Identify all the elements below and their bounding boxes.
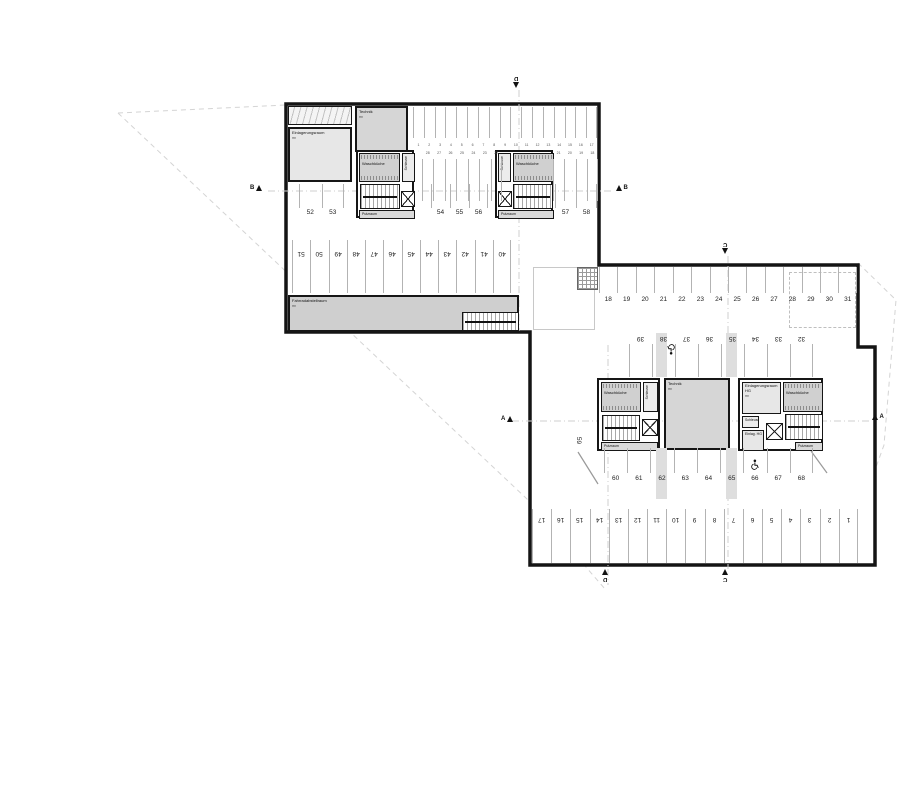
parking-stall: 53 xyxy=(322,184,345,216)
section-arrow-icon xyxy=(722,248,728,254)
parking-stall: 33 xyxy=(767,332,790,377)
parking-stall: 2 xyxy=(820,509,839,563)
stall-number: 2 xyxy=(820,516,839,523)
stairs-icon xyxy=(513,184,553,209)
stall-number: 35 xyxy=(721,335,744,342)
stall-number: 57 xyxy=(555,209,576,216)
parking-stall: 43 xyxy=(438,240,456,293)
stall-number: 37 xyxy=(675,335,698,342)
stall-number: 50 xyxy=(310,250,328,257)
entry-ramp xyxy=(288,106,352,125)
stall-number: 67 xyxy=(767,475,790,482)
shelf-hatch xyxy=(603,406,639,410)
room-label: Technik xyxy=(359,109,373,114)
stall-number: 66 xyxy=(743,475,766,482)
stall-number: 7 xyxy=(478,143,489,147)
section-letter: B xyxy=(624,185,628,191)
room-schleuse: Schleuse xyxy=(742,416,759,428)
room-label: Waschküche xyxy=(786,391,809,396)
parking-stall: 64 xyxy=(697,448,720,488)
parking-stall: 11 xyxy=(647,509,666,563)
stall-number: 11 xyxy=(521,143,532,147)
stall-number: 26 xyxy=(445,151,456,155)
stall-number: 45 xyxy=(402,250,420,257)
parking-stall: 32 xyxy=(790,332,813,377)
room-einlagerungsraum: Einlagerungsraum m² xyxy=(288,127,352,182)
stall-number: 24 xyxy=(468,151,479,155)
parking-stall: 4 xyxy=(445,107,456,148)
section-arrow-icon xyxy=(256,185,262,191)
parking-stall: 6 xyxy=(467,107,478,148)
parking-stall: 45 xyxy=(402,240,420,293)
stall-number: 19 xyxy=(576,151,587,155)
room-label: Putzraum xyxy=(501,212,516,216)
parking-stall: 10 xyxy=(666,509,685,563)
parking-stall: 62 xyxy=(650,448,673,488)
section-marker-d-top: D xyxy=(513,75,519,88)
section-arrow-icon xyxy=(722,569,728,575)
parking-stall: 1 xyxy=(413,107,424,148)
parking-stall: 17 xyxy=(586,107,597,148)
parking-stall: 15 xyxy=(570,509,589,563)
section-marker-a-right: A xyxy=(872,414,884,420)
parking-stall: 50 xyxy=(310,240,328,293)
room-label: Einlagerungsraum xyxy=(292,130,324,135)
stall-number: 9 xyxy=(685,516,704,523)
stall-number: 47 xyxy=(365,250,383,257)
shelf-hatch xyxy=(785,384,821,388)
stair-core-3: Waschküche Schleuse Putzraum xyxy=(597,378,660,451)
stall-number: 30 xyxy=(820,296,838,303)
wheelchair-icon xyxy=(750,459,759,470)
parking-stall: 65 xyxy=(720,448,743,488)
room-schleuse: Schleuse xyxy=(643,382,658,412)
stall-number: 20 xyxy=(636,296,654,303)
shelf-hatch xyxy=(515,155,552,159)
stall-number: 34 xyxy=(744,335,767,342)
parking-stall: 22 xyxy=(673,267,691,311)
parking-stall: 3 xyxy=(435,107,446,148)
room-label: Technik xyxy=(668,381,682,386)
section-arrow-icon xyxy=(872,414,878,420)
stall-number: 20 xyxy=(564,151,575,155)
room-label: Schleuse xyxy=(745,418,759,422)
stall-number: 12 xyxy=(628,516,647,523)
parking-stall: 15 xyxy=(565,107,576,148)
stall-number: 22 xyxy=(491,151,502,155)
room-area: m² xyxy=(292,136,296,140)
stall-row-57-58: 5758 xyxy=(555,184,597,216)
room-label: Putzraum xyxy=(362,212,377,216)
parking-stall: 37 xyxy=(675,332,698,377)
section-marker-b-right: B xyxy=(616,185,628,191)
stall-number: 31 xyxy=(838,296,856,303)
stall-number: 68 xyxy=(790,475,813,482)
parking-stall: 49 xyxy=(329,240,347,293)
stall-number: 3 xyxy=(800,516,819,523)
room-putzraum: Putzraum xyxy=(359,210,415,219)
parking-stall: 44 xyxy=(420,240,438,293)
stall-number: 33 xyxy=(767,335,790,342)
stall-number: 14 xyxy=(590,516,609,523)
parking-stall: 41 xyxy=(475,240,493,293)
parking-stall: 67 xyxy=(767,448,790,488)
parking-stall: 12 xyxy=(532,107,543,148)
parking-stall: 16 xyxy=(551,509,570,563)
section-marker-b-left: B xyxy=(250,185,262,191)
parking-stall: 58 xyxy=(576,184,597,216)
room-label: Schleuse xyxy=(645,385,649,399)
parking-stall: 55 xyxy=(450,184,469,216)
parking-stall: 9 xyxy=(500,107,511,148)
section-letter: A xyxy=(501,416,505,422)
stall-number: 1 xyxy=(413,143,424,147)
stall-number: 17 xyxy=(532,516,551,523)
room-label: Fahrradabstellraum xyxy=(292,298,327,303)
section-letter: C xyxy=(723,576,727,582)
stall-number: 40 xyxy=(493,250,511,257)
parking-stall: 47 xyxy=(365,240,383,293)
stair-core-2: Waschküche Schleuse Putzraum xyxy=(495,150,553,218)
stall-number: 18 xyxy=(587,151,598,155)
parking-stall: 35 xyxy=(721,332,744,377)
room-schleuse: Schleuse xyxy=(402,153,415,182)
stall-number: 21 xyxy=(553,151,564,155)
room-putzraum: Putzraum xyxy=(498,210,554,219)
parking-stall: 9 xyxy=(685,509,704,563)
stall-row-52-53: 5253 xyxy=(299,184,344,216)
stall-number: 15 xyxy=(570,516,589,523)
section-arrow-icon xyxy=(513,82,519,88)
stall-number: 44 xyxy=(420,250,438,257)
stall-number: 62 xyxy=(650,475,673,482)
shelf-hatch xyxy=(785,406,821,410)
shelf-hatch xyxy=(361,155,398,159)
stall-number: 5 xyxy=(762,516,781,523)
room-waschkueche: Waschküche xyxy=(601,382,641,412)
stall-number: 27 xyxy=(433,151,444,155)
parking-stall: 14 xyxy=(554,107,565,148)
stall-number: 55 xyxy=(450,209,469,216)
section-arrow-icon xyxy=(602,569,608,575)
parking-stall: 31 xyxy=(838,267,856,311)
stall-number: 51 xyxy=(292,250,310,257)
parking-stall: 13 xyxy=(543,107,554,148)
stall-number: 15 xyxy=(565,143,576,147)
room-label: Einlag. HG xyxy=(745,432,762,436)
stall-row-60-68: 606162636465666768 xyxy=(604,448,813,488)
stairs-icon xyxy=(360,184,400,209)
stair-core-4: Einlagerungsraum HG m² Waschküche Schleu… xyxy=(738,378,823,451)
stall-number: 54 xyxy=(431,209,450,216)
stall-row-upper-top: 1234567891011121314151617 xyxy=(413,107,597,148)
stall-number: 4 xyxy=(781,516,800,523)
stall-number: 14 xyxy=(554,143,565,147)
stall-number: 3 xyxy=(435,143,446,147)
stall-number: 10 xyxy=(666,516,685,523)
elevator-icon xyxy=(642,419,658,436)
stall-number: 6 xyxy=(743,516,762,523)
section-letter: D xyxy=(603,576,607,582)
stall-number: 21 xyxy=(654,296,672,303)
elevator-icon xyxy=(766,423,783,440)
stall-number: 16 xyxy=(551,516,570,523)
floor-plan: Einlagerungsraum m² Technik m² Waschküch… xyxy=(0,0,900,793)
stall-number: 17 xyxy=(586,143,597,147)
stall-number: 64 xyxy=(697,475,720,482)
room-technik-lower: Technik m² xyxy=(664,378,730,450)
stall-number: 8 xyxy=(705,516,724,523)
stall-number: 2 xyxy=(424,143,435,147)
parking-stall: 42 xyxy=(456,240,474,293)
wheelchair-icon xyxy=(667,344,676,355)
parking-stall: 2 xyxy=(424,107,435,148)
parking-stall: 22 xyxy=(491,151,502,201)
room-label: Waschküche xyxy=(604,391,627,396)
parking-stall: 24 xyxy=(710,267,728,311)
stall-number-59: 59 xyxy=(575,437,582,444)
parking-stall: 56 xyxy=(469,184,488,216)
stall-number: 28 xyxy=(783,296,801,303)
stall-number: 24 xyxy=(710,296,728,303)
parking-stall: 54 xyxy=(431,184,450,216)
stall-row-32-39: 3938373635343332 xyxy=(629,332,813,377)
room-label: Schleuse xyxy=(404,156,408,170)
stall-number: 11 xyxy=(647,516,666,523)
stall-number: 39 xyxy=(629,335,652,342)
stall-number: 5 xyxy=(456,143,467,147)
parking-stall: 3 xyxy=(800,509,819,563)
parking-stall: 7 xyxy=(478,107,489,148)
stall-number: 6 xyxy=(467,143,478,147)
stall-number: 58 xyxy=(576,209,597,216)
stall-number: 18 xyxy=(599,296,617,303)
parking-stall: 68 xyxy=(790,448,813,488)
parking-stall: 25 xyxy=(728,267,746,311)
stall-number: 10 xyxy=(510,143,521,147)
section-letter: D xyxy=(514,75,518,81)
room-area: m² xyxy=(292,304,296,308)
stall-number: 36 xyxy=(698,335,721,342)
stall-number: 41 xyxy=(475,250,493,257)
stall-number: 12 xyxy=(532,143,543,147)
stall-number: 42 xyxy=(456,250,474,257)
room-technik-upper: Technik m² xyxy=(355,106,408,152)
stall-number: 56 xyxy=(469,209,488,216)
parking-stall: 48 xyxy=(347,240,365,293)
stall-number: 1 xyxy=(839,516,858,523)
parking-stall: 1 xyxy=(839,509,858,563)
stall-number: 7 xyxy=(724,516,743,523)
stall-number: 26 xyxy=(746,296,764,303)
stall-number: 4 xyxy=(445,143,456,147)
stall-number: 23 xyxy=(691,296,709,303)
room-waschkueche: Waschküche xyxy=(359,153,400,182)
section-arrow-icon xyxy=(616,185,622,191)
stall-number: 38 xyxy=(652,335,675,342)
stall-number: 65 xyxy=(720,475,743,482)
stall-number: 61 xyxy=(627,475,650,482)
stall-number: 43 xyxy=(438,250,456,257)
parking-stall: 23 xyxy=(691,267,709,311)
parking-stall: 57 xyxy=(555,184,576,216)
stall-number: 28 xyxy=(422,151,433,155)
room-einlagerungsraum-hg: Einlagerungsraum HG m² xyxy=(742,382,781,414)
parking-stall: 60 xyxy=(604,448,627,488)
parking-stall: 7 xyxy=(724,509,743,563)
grating-icon xyxy=(577,267,598,290)
ramp-stairs-icon xyxy=(462,312,519,331)
stall-number: 49 xyxy=(329,250,347,257)
stall-number: 19 xyxy=(617,296,635,303)
section-marker-a-left: A xyxy=(501,416,513,422)
parking-stall: 61 xyxy=(627,448,650,488)
parking-stall: 20 xyxy=(636,267,654,311)
shelf-hatch xyxy=(515,176,552,180)
parking-stall: 63 xyxy=(674,448,697,488)
parking-stall: 18 xyxy=(599,267,617,311)
section-marker-d-bottom: D xyxy=(602,569,608,582)
shelf-hatch xyxy=(603,384,639,388)
parking-stall: 8 xyxy=(705,509,724,563)
room-label: Waschküche xyxy=(362,162,385,167)
room-area: m² xyxy=(745,394,749,398)
parking-stall: 6 xyxy=(743,509,762,563)
stall-number: 63 xyxy=(674,475,697,482)
room-label: Einlagerungsraum HG xyxy=(745,384,780,394)
parking-stall: 36 xyxy=(698,332,721,377)
section-letter: A xyxy=(880,414,884,420)
room-area: m² xyxy=(668,387,672,391)
stall-number: 48 xyxy=(347,250,365,257)
parking-stall: 16 xyxy=(575,107,586,148)
parking-stall: 14 xyxy=(590,509,609,563)
parking-stall: 10 xyxy=(510,107,521,148)
stall-number: 46 xyxy=(383,250,401,257)
parking-stall: 13 xyxy=(609,509,628,563)
parking-stall: 5 xyxy=(456,107,467,148)
shelf-hatch xyxy=(361,176,398,180)
room-waschkueche: Waschküche xyxy=(783,382,823,412)
section-marker-c-bottom: C xyxy=(722,569,728,582)
stall-number: 25 xyxy=(456,151,467,155)
stairs-icon xyxy=(602,415,640,441)
section-letter: B xyxy=(250,185,254,191)
stall-number: 25 xyxy=(728,296,746,303)
stall-number: 9 xyxy=(500,143,511,147)
parking-stall: 51 xyxy=(292,240,310,293)
parking-stall: 11 xyxy=(521,107,532,148)
stall-number: 29 xyxy=(802,296,820,303)
stall-number: 13 xyxy=(609,516,628,523)
stall-number: 32 xyxy=(790,335,813,342)
stall-number: 16 xyxy=(575,143,586,147)
parking-stall: 52 xyxy=(299,184,322,216)
stall-number: 27 xyxy=(765,296,783,303)
section-arrow-icon xyxy=(507,416,513,422)
parking-stall: 46 xyxy=(383,240,401,293)
elevator-icon xyxy=(401,191,415,207)
parking-stall: 29 xyxy=(802,267,820,311)
parking-stall: 5 xyxy=(762,509,781,563)
section-marker-c-top: C xyxy=(722,241,728,254)
parking-stall: 40 xyxy=(493,240,511,293)
stall-row-54-56: 545556 xyxy=(431,184,488,216)
stall-number: 8 xyxy=(489,143,500,147)
stall-number: 13 xyxy=(543,143,554,147)
parking-stall: 21 xyxy=(654,267,672,311)
stall-row-bottom-1-17: 1716151413121110987654321 xyxy=(532,509,858,563)
parking-stall: 27 xyxy=(765,267,783,311)
room-label: Waschküche xyxy=(516,162,539,167)
stall-number: 60 xyxy=(604,475,627,482)
stall-number: 53 xyxy=(322,209,345,216)
parking-stall: 30 xyxy=(820,267,838,311)
parking-stall: 34 xyxy=(744,332,767,377)
stairs-icon xyxy=(785,414,823,440)
stall-row-40-51: 515049484746454443424140 xyxy=(292,240,511,293)
parking-stall: 26 xyxy=(746,267,764,311)
parking-stall: 28 xyxy=(783,267,801,311)
parking-stall: 4 xyxy=(781,509,800,563)
stair-core-1: Waschküche Schleuse Putzraum xyxy=(356,150,414,218)
parking-stall: 19 xyxy=(617,267,635,311)
stall-number: 23 xyxy=(479,151,490,155)
room-area: m² xyxy=(359,115,363,119)
parking-stall: 39 xyxy=(629,332,652,377)
parking-stall: 12 xyxy=(628,509,647,563)
room-waschkueche: Waschküche xyxy=(513,153,554,182)
parking-stall: 8 xyxy=(489,107,500,148)
section-letter: C xyxy=(723,241,727,247)
parking-stall: 17 xyxy=(532,509,551,563)
stall-number: 22 xyxy=(673,296,691,303)
stall-number: 52 xyxy=(299,209,322,216)
stall-row-18-31: 1819202122232425262728293031 xyxy=(599,267,857,311)
